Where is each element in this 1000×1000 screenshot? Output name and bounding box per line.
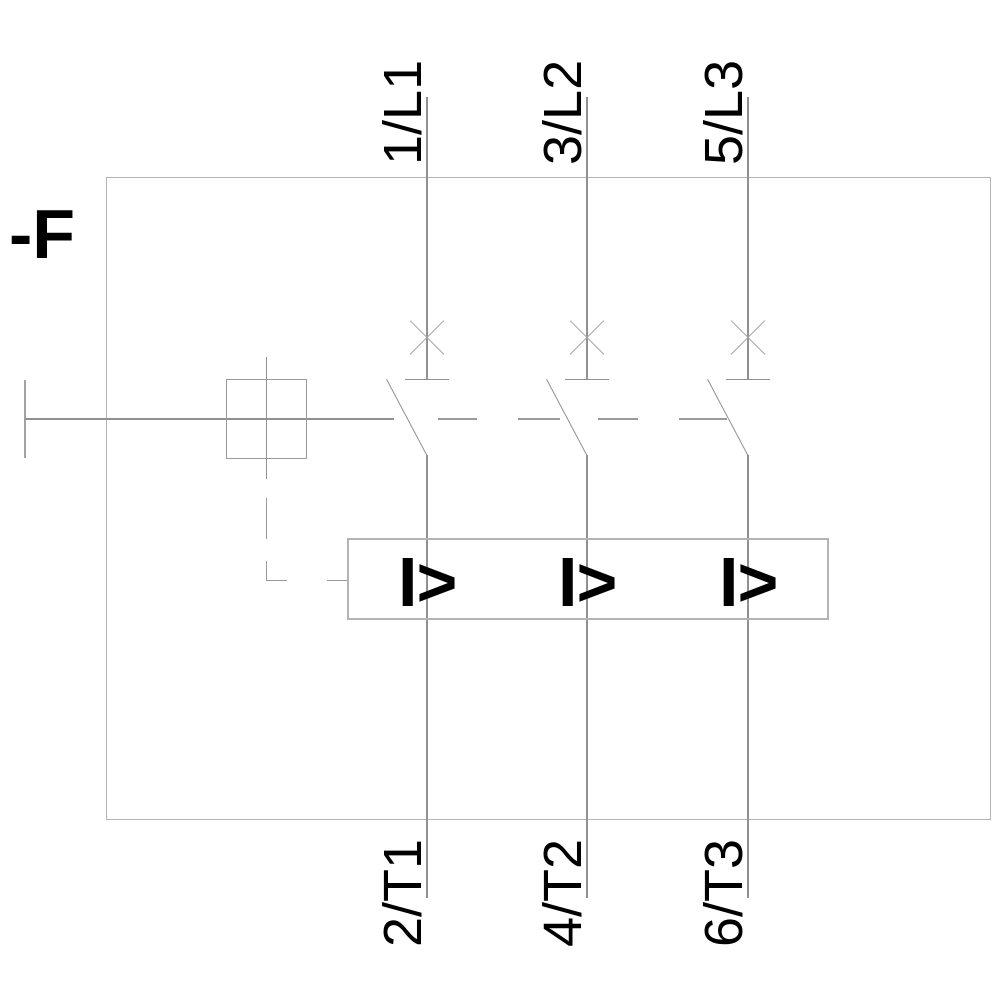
trip-link-dash (266, 580, 288, 582)
terminal-bar (405, 379, 449, 381)
trip-link-dash (266, 561, 268, 580)
trip-link-dash (266, 498, 268, 539)
trip-link-dash (327, 580, 348, 582)
top-terminal-label: 1/L1 (376, 60, 430, 165)
linkage-dash (438, 418, 477, 420)
bottom-terminal-label: 6/T3 (697, 839, 751, 947)
pole-line-bottom (747, 455, 749, 898)
terminal-bar (726, 379, 770, 381)
actuator-line (25, 418, 394, 420)
overcurrent-release-symbol: I> (398, 547, 456, 617)
bottom-terminal-label: 2/T1 (376, 839, 430, 947)
top-terminal-label: 5/L3 (697, 60, 751, 165)
bottom-terminal-label: 4/T2 (536, 839, 590, 947)
actuator-center-line (266, 357, 268, 479)
circuit-diagram: -F 1/L1 2/T1 3/L2 4/T2 5/L3 (0, 0, 1000, 1000)
overcurrent-release-symbol: I> (558, 547, 616, 617)
linkage-dash (679, 418, 727, 420)
device-boundary-frame (106, 177, 991, 820)
terminal-bar (565, 379, 609, 381)
overcurrent-release-symbol: I> (719, 547, 777, 617)
pole-line-bottom (426, 455, 428, 898)
device-designation-label: -F (9, 199, 75, 269)
linkage-dash (518, 418, 560, 420)
pole-line-bottom (586, 455, 588, 898)
top-terminal-label: 3/L2 (536, 60, 590, 165)
linkage-dash (598, 418, 638, 420)
